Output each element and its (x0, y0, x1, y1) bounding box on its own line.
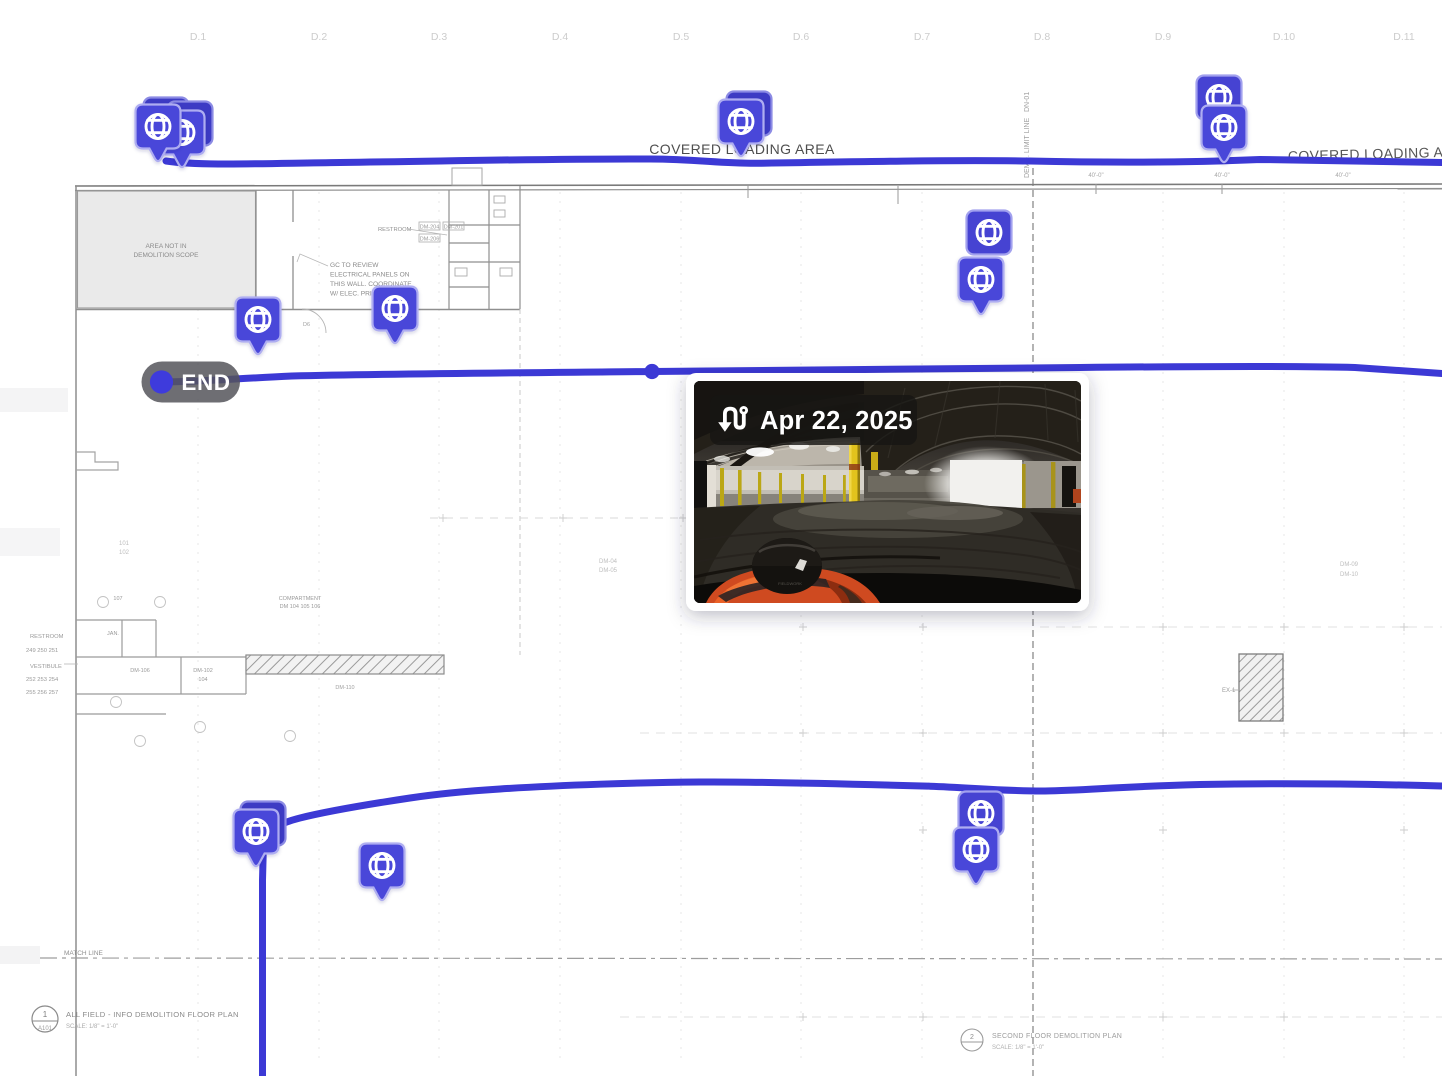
svg-text:DM 104 105 106: DM 104 105 106 (280, 604, 321, 610)
svg-text:DEMO. LIMIT LINE DN-01: DEMO. LIMIT LINE DN-01 (1024, 92, 1031, 178)
svg-text:MATCH LINE: MATCH LINE (64, 950, 104, 957)
svg-text:SCALE: 1/8" = 1'-0": SCALE: 1/8" = 1'-0" (992, 1045, 1044, 1051)
svg-text:D.3: D.3 (431, 31, 448, 43)
svg-text:COMPARTMENT: COMPARTMENT (279, 596, 322, 602)
svg-text:D.10: D.10 (1273, 31, 1295, 43)
svg-text:DM-110: DM-110 (335, 685, 354, 691)
svg-text:D.4: D.4 (552, 31, 569, 43)
svg-text:EX-1: EX-1 (1222, 688, 1236, 694)
svg-text:Apr 22, 2025: Apr 22, 2025 (760, 407, 913, 435)
svg-text:249 250 251: 249 250 251 (26, 648, 58, 654)
svg-text:DM-10: DM-10 (1340, 572, 1359, 578)
svg-text:255 256 257: 255 256 257 (26, 690, 58, 696)
svg-text:102: 102 (119, 550, 130, 556)
svg-text:END: END (181, 370, 230, 395)
svg-text:DM-206: DM-206 (420, 237, 440, 243)
svg-text:FIELDWORK: FIELDWORK (778, 581, 802, 586)
svg-text:40'-0": 40'-0" (1335, 173, 1350, 179)
svg-text:1: 1 (43, 1010, 48, 1019)
svg-text:107: 107 (113, 596, 122, 602)
svg-text:DM-106: DM-106 (130, 668, 150, 674)
svg-text:D.5: D.5 (673, 31, 690, 43)
svg-text:DM-102: DM-102 (193, 668, 213, 674)
svg-text:RESTROOM: RESTROOM (30, 634, 64, 640)
svg-text:D.11: D.11 (1393, 31, 1415, 43)
svg-text:40'-0": 40'-0" (1088, 173, 1103, 179)
svg-text:40'-0": 40'-0" (1214, 173, 1229, 179)
svg-text:D.7: D.7 (914, 31, 931, 43)
svg-text:JAN.: JAN. (107, 631, 119, 637)
svg-text:DM-04: DM-04 (599, 559, 618, 565)
svg-text:A101: A101 (38, 1026, 53, 1032)
svg-text:DM-05: DM-05 (599, 568, 618, 574)
svg-text:D.8: D.8 (1034, 31, 1051, 43)
svg-text:DEMOLITION SCOPE: DEMOLITION SCOPE (133, 252, 199, 259)
svg-text:D6: D6 (303, 322, 310, 328)
svg-text:D.2: D.2 (311, 31, 328, 43)
svg-text:RESTROOM: RESTROOM (378, 227, 412, 233)
svg-text:GC TO REVIEW: GC TO REVIEW (330, 262, 379, 269)
svg-text:AREA NOT IN: AREA NOT IN (145, 243, 186, 250)
svg-text:252 253 254: 252 253 254 (26, 677, 59, 683)
svg-text:101: 101 (119, 541, 130, 547)
svg-text:ELECTRICAL PANELS ON: ELECTRICAL PANELS ON (330, 272, 410, 279)
svg-text:D.9: D.9 (1155, 31, 1172, 43)
svg-text:2: 2 (970, 1034, 974, 1041)
svg-text:D.1: D.1 (190, 31, 207, 43)
svg-text:DM-09: DM-09 (1340, 562, 1359, 568)
svg-text:ALL FIELD - INFO DEMOLITION FL: ALL FIELD - INFO DEMOLITION FLOOR PLAN (66, 1010, 239, 1019)
svg-text:DM-201: DM-201 (444, 225, 464, 231)
svg-text:DM-204: DM-204 (420, 225, 440, 231)
svg-text:VESTIBULE: VESTIBULE (30, 664, 62, 670)
svg-text:104: 104 (198, 677, 207, 683)
svg-text:SCALE: 1/8" = 1'-0": SCALE: 1/8" = 1'-0" (66, 1024, 118, 1030)
svg-text:D.6: D.6 (793, 31, 810, 43)
svg-text:SECOND FLOOR DEMOLITION PLAN: SECOND FLOOR DEMOLITION PLAN (992, 1033, 1122, 1040)
